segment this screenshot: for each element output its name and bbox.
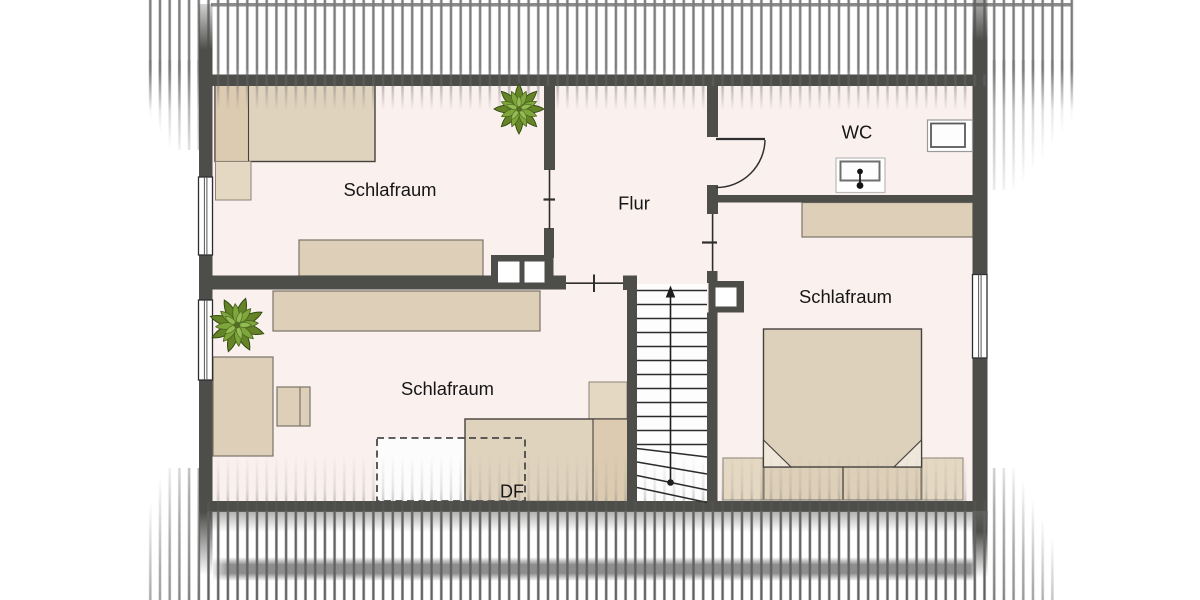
svg-text:Schlafraum: Schlafraum [401,378,494,399]
svg-text:Schlafraum: Schlafraum [799,286,892,307]
svg-text:WC: WC [842,122,873,143]
svg-text:Flur: Flur [618,193,650,214]
svg-text:DF: DF [500,482,524,502]
svg-text:Schlafraum: Schlafraum [343,179,436,200]
